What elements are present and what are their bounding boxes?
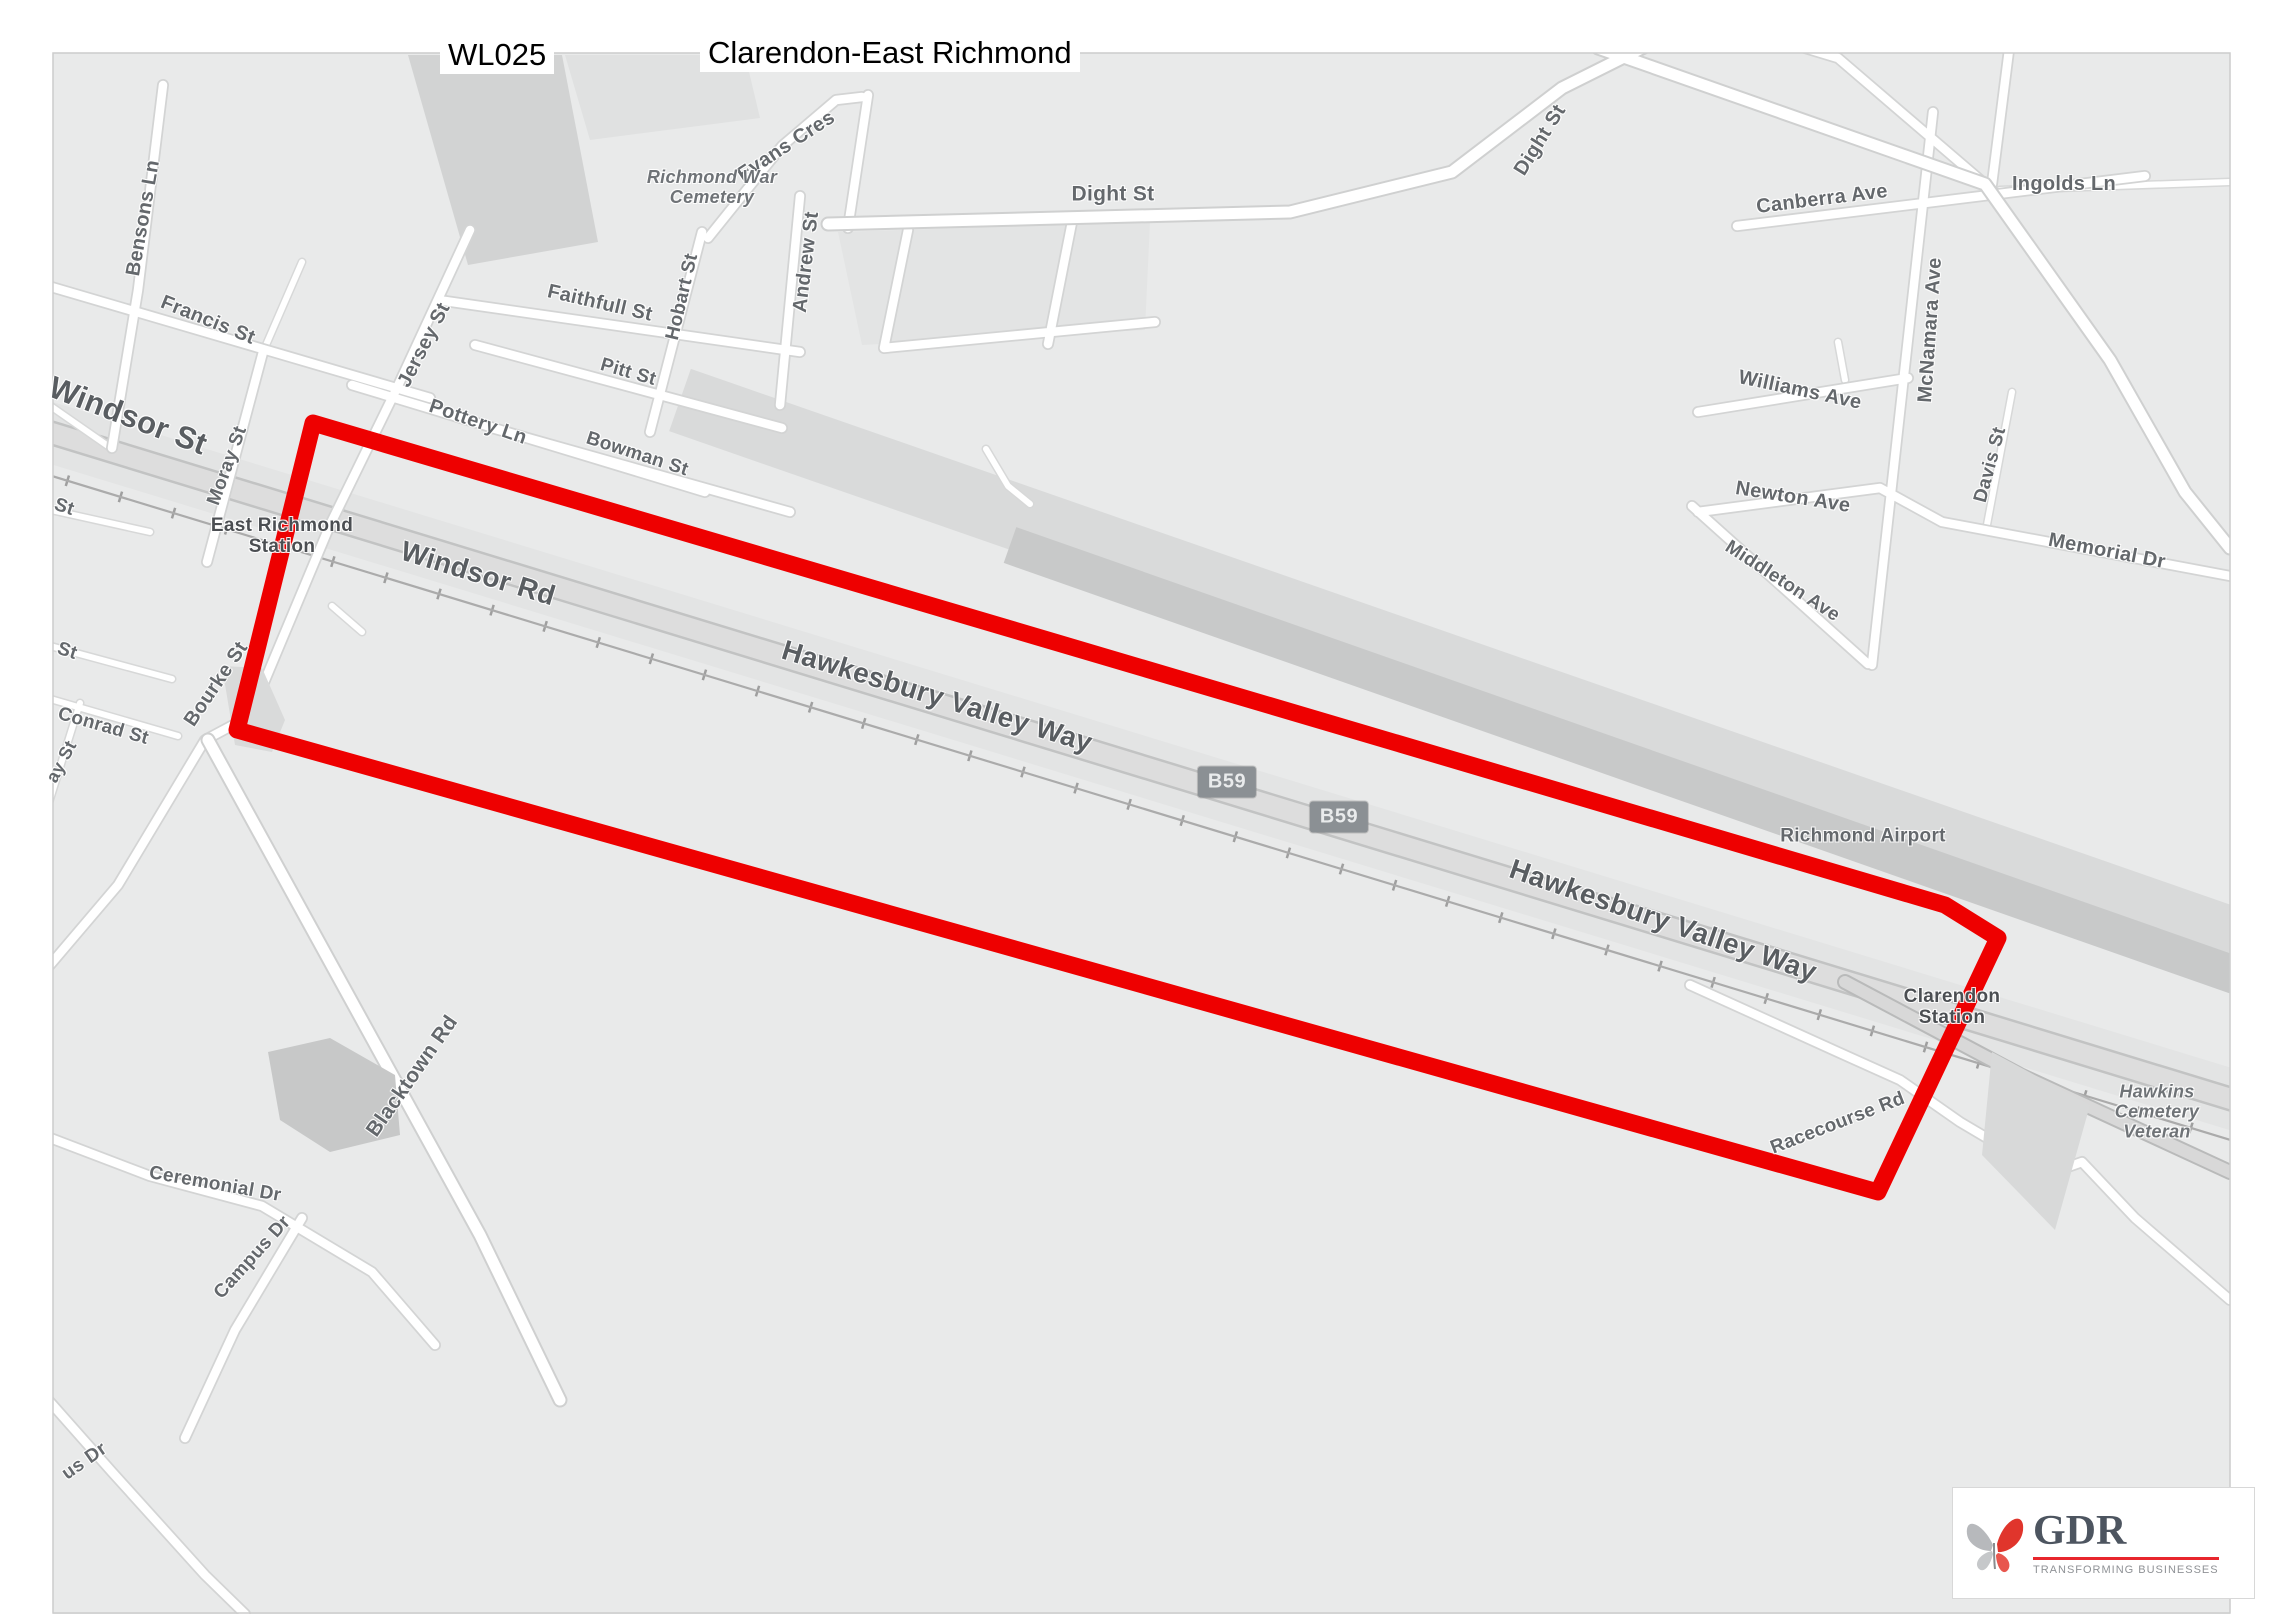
route-badge-b59-2: B59 [1310,802,1368,833]
label-dight-st-west: Dight St [1072,182,1155,205]
sheet-code-title: WL025 [440,36,554,74]
label-hawkins-cemetery-veteran: Hawkins Cemetery Veteran [2115,1082,2199,1141]
butterfly-icon [1963,1499,2027,1587]
route-badge-b59-1: B59 [1198,767,1256,798]
label-richmond-airport: Richmond Airport [1780,827,1946,848]
gdr-logo: GDR TRANSFORMING BUSINESSES [1952,1487,2255,1599]
label-clarendon-station: Clarendon Station [1904,987,2001,1029]
label-east-richmond-station: East Richmond Station [211,516,353,558]
logo-name: GDR [2033,1510,2219,1552]
map-document: Bensons LnFrancis StWindsor StMoray StSt… [0,0,2283,1614]
logo-tagline: TRANSFORMING BUSINESSES [2033,1557,2219,1576]
map-canvas[interactable] [0,0,2283,1614]
page-title: Clarendon-East Richmond [700,34,1080,72]
label-richmond-war-cemetery: Richmond War Cemetery [647,168,777,208]
label-ingolds-ln: Ingolds Ln [2012,173,2116,195]
